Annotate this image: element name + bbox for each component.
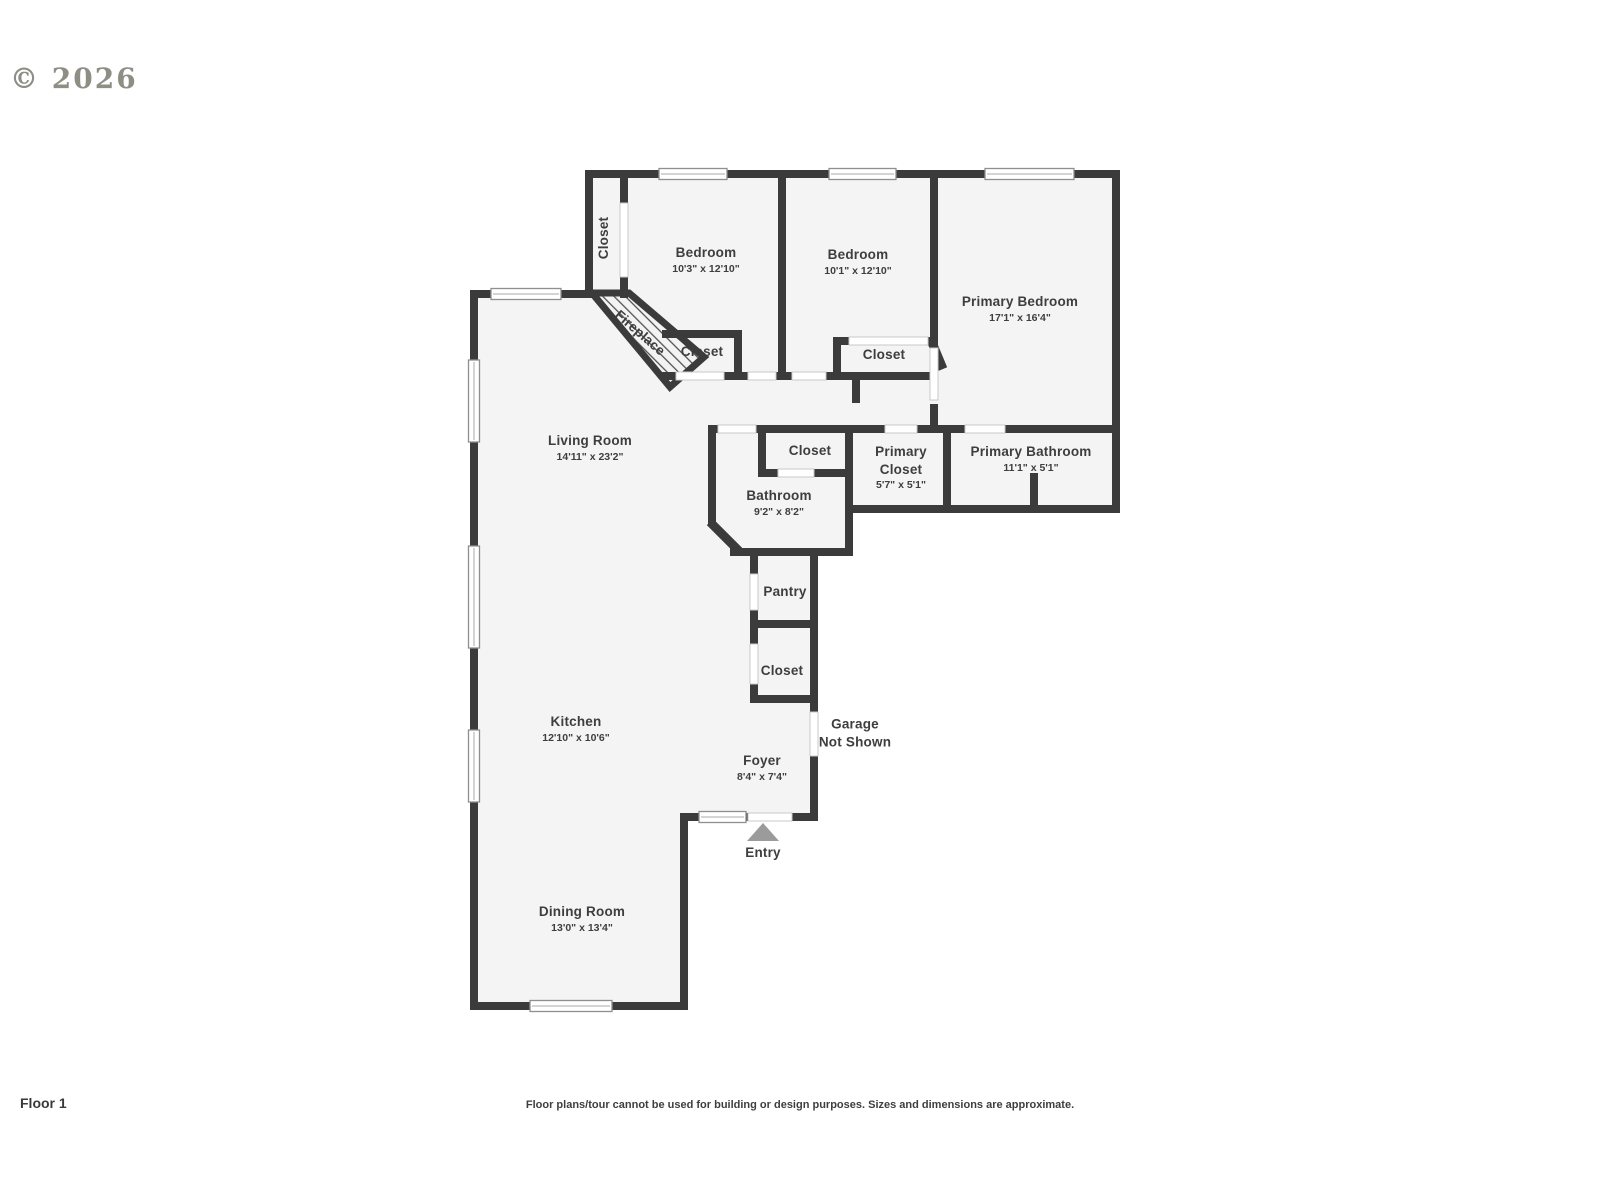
room-label-garage: Garage Not Shown bbox=[819, 715, 891, 750]
room-dimensions: 11'1" x 5'1" bbox=[971, 461, 1092, 475]
entry-arrow-icon bbox=[747, 823, 779, 841]
room-label-living-room: Living Room14'11" x 23'2" bbox=[548, 432, 632, 464]
room-name: Bedroom bbox=[672, 244, 740, 262]
room-dimensions: 13'0" x 13'4" bbox=[539, 921, 625, 935]
room-label-pantry: Pantry bbox=[763, 583, 806, 601]
room-dimensions: 8'4" x 7'4" bbox=[737, 770, 787, 784]
room-name: Foyer bbox=[737, 752, 787, 770]
room-label-closet-hall: Closet bbox=[789, 442, 831, 460]
room-label-primary-bedroom: Primary Bedroom17'1" x 16'4" bbox=[962, 293, 1078, 325]
room-dimensions: 12'10" x 10'6" bbox=[542, 731, 610, 745]
room-dimensions: 10'1" x 12'10" bbox=[824, 264, 892, 278]
room-name: Garage Not Shown bbox=[819, 715, 891, 750]
room-label-primary-bathroom: Primary Bathroom11'1" x 5'1" bbox=[971, 443, 1092, 475]
room-label-bathroom: Bathroom9'2" x 8'2" bbox=[746, 487, 811, 519]
room-name: Closet bbox=[863, 346, 905, 364]
room-name: Bedroom bbox=[824, 246, 892, 264]
room-label-closet-fireplace: Closet bbox=[681, 343, 723, 361]
room-label-entry: Entry bbox=[745, 844, 781, 862]
room-label-primary-closet: Primary Closet5'7" x 5'1" bbox=[875, 443, 927, 493]
floor-plan: ClosetBedroom10'3" x 12'10"Bedroom10'1" … bbox=[0, 0, 1600, 1200]
room-name: Entry bbox=[745, 844, 781, 862]
room-dimensions: 10'3" x 12'10" bbox=[672, 262, 740, 276]
room-name: Pantry bbox=[763, 583, 806, 601]
room-label-kitchen: Kitchen12'10" x 10'6" bbox=[542, 713, 610, 745]
room-label-bedroom-1: Bedroom10'3" x 12'10" bbox=[672, 244, 740, 276]
room-dimensions: 14'11" x 23'2" bbox=[548, 450, 632, 464]
room-dimensions: 9'2" x 8'2" bbox=[746, 505, 811, 519]
room-label-bedroom-2: Bedroom10'1" x 12'10" bbox=[824, 246, 892, 278]
room-dimensions: 5'7" x 5'1" bbox=[875, 479, 927, 493]
room-name: Closet bbox=[789, 442, 831, 460]
room-name: Bathroom bbox=[746, 487, 811, 505]
room-name: Dining Room bbox=[539, 903, 625, 921]
room-label-closet-bedroom-2: Closet bbox=[863, 346, 905, 364]
room-name: Closet bbox=[761, 662, 803, 680]
disclaimer-text: Floor plans/tour cannot be used for buil… bbox=[0, 1099, 1600, 1111]
room-name: Kitchen bbox=[542, 713, 610, 731]
room-name: Living Room bbox=[548, 432, 632, 450]
room-name: Closet bbox=[595, 217, 613, 259]
room-label-foyer: Foyer8'4" x 7'4" bbox=[737, 752, 787, 784]
room-name: Primary Bathroom bbox=[971, 443, 1092, 461]
room-label-closet-pantry: Closet bbox=[761, 662, 803, 680]
room-name: Primary Bedroom bbox=[962, 293, 1078, 311]
room-label-closet-top: Closet bbox=[595, 217, 613, 259]
room-label-dining-room: Dining Room13'0" x 13'4" bbox=[539, 903, 625, 935]
room-name: Closet bbox=[681, 343, 723, 361]
room-dimensions: 17'1" x 16'4" bbox=[962, 311, 1078, 325]
room-name: Primary Closet bbox=[875, 443, 927, 478]
